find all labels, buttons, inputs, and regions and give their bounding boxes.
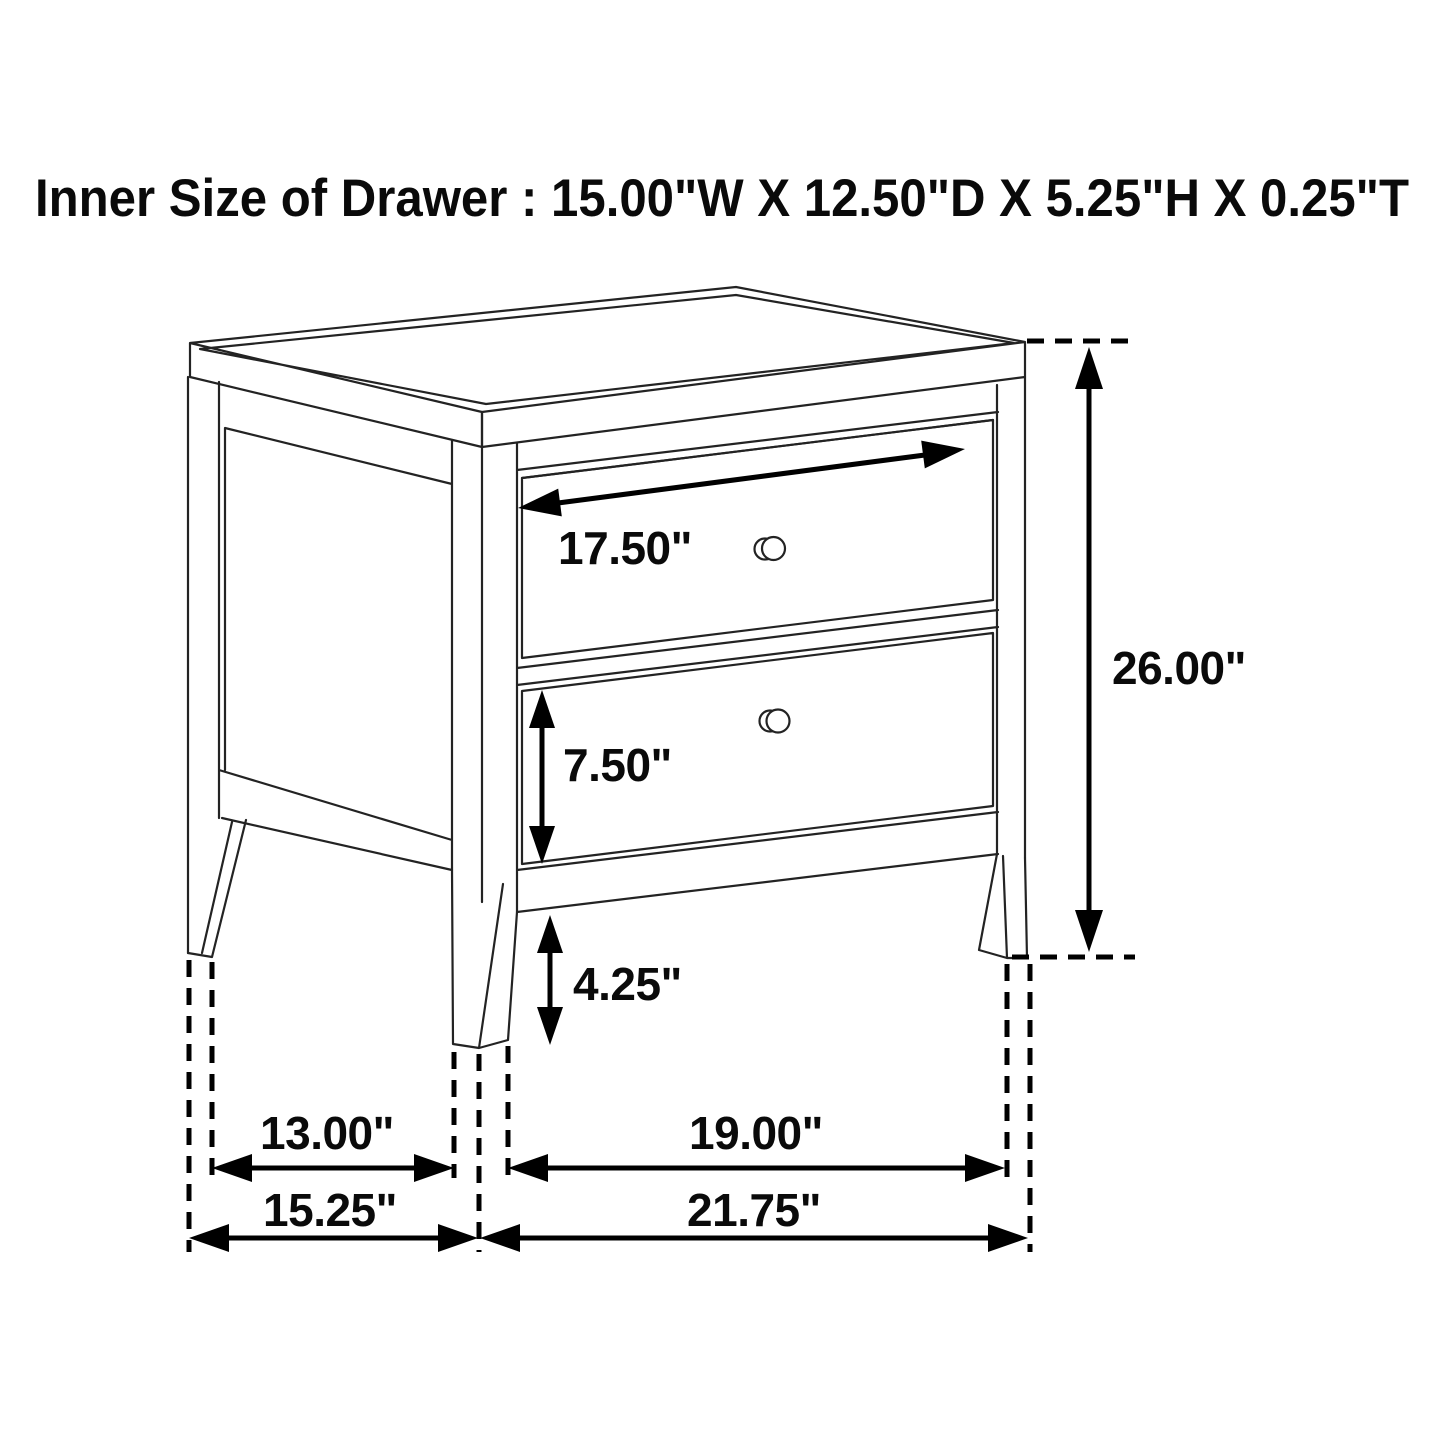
arrowhead-up-icon (537, 915, 563, 953)
dimension-label: 19.00" (689, 1107, 823, 1159)
arrowhead-down-icon (537, 1007, 563, 1045)
dimension-label: 15.25" (263, 1184, 397, 1236)
dimension-label: 21.75" (687, 1184, 821, 1236)
front-face (517, 377, 1025, 912)
dimension-leg-clearance: 4.25" (537, 915, 682, 1045)
dimension-side-leg-spacing: 13.00" (212, 1107, 454, 1182)
nightstand-drawing (188, 287, 1027, 1048)
dimension-overall-depth: 15.25" (189, 1184, 478, 1252)
diagram-canvas: Inner Size of Drawer : 15.00"W X 12.50"D… (0, 0, 1445, 1445)
arrowhead-up-icon (1075, 347, 1103, 389)
arrowhead-right-icon (988, 1224, 1028, 1252)
dimension-label: 26.00" (1112, 642, 1246, 694)
dimension-label: 4.25" (573, 958, 682, 1010)
arrowhead-down-icon (529, 826, 555, 864)
side-panel (188, 377, 482, 953)
dimension-lower-drawer-height: 7.50" (529, 690, 672, 864)
dimension-drawer-face-width: 17.50" (518, 441, 965, 574)
dimension-diagram-svg: Inner Size of Drawer : 15.00"W X 12.50"D… (0, 0, 1445, 1445)
arrowhead-left-icon (189, 1224, 229, 1252)
dimension-label: 17.50" (558, 522, 692, 574)
arrowhead-right-icon (965, 1154, 1005, 1182)
arrowhead-left-icon (508, 1154, 548, 1182)
rear-left-leg (188, 820, 246, 957)
arrowhead-left-icon (212, 1154, 252, 1182)
arrowhead-left-icon (518, 489, 562, 517)
front-left-leg (452, 868, 517, 1048)
drawer-2-knob-icon (767, 710, 790, 733)
dimension-overall-width: 21.75" (480, 1184, 1028, 1252)
page-title: Inner Size of Drawer : 15.00"W X 12.50"D… (35, 169, 1409, 228)
drawer-1-knob-icon (762, 537, 785, 560)
arrowhead-up-icon (529, 690, 555, 728)
arrowhead-right-icon (921, 441, 965, 469)
arrowhead-right-icon (438, 1224, 478, 1252)
arrowhead-down-icon (1075, 910, 1103, 952)
dimension-overall-height: 26.00" (1075, 347, 1246, 952)
arrowhead-right-icon (414, 1154, 454, 1182)
arrowhead-left-icon (480, 1224, 520, 1252)
front-right-leg (979, 854, 1027, 958)
dimension-label: 7.50" (563, 739, 672, 791)
dimension-label: 13.00" (260, 1107, 394, 1159)
arrow-shaft (558, 455, 925, 503)
dimension-front-leg-spacing: 19.00" (508, 1107, 1005, 1182)
